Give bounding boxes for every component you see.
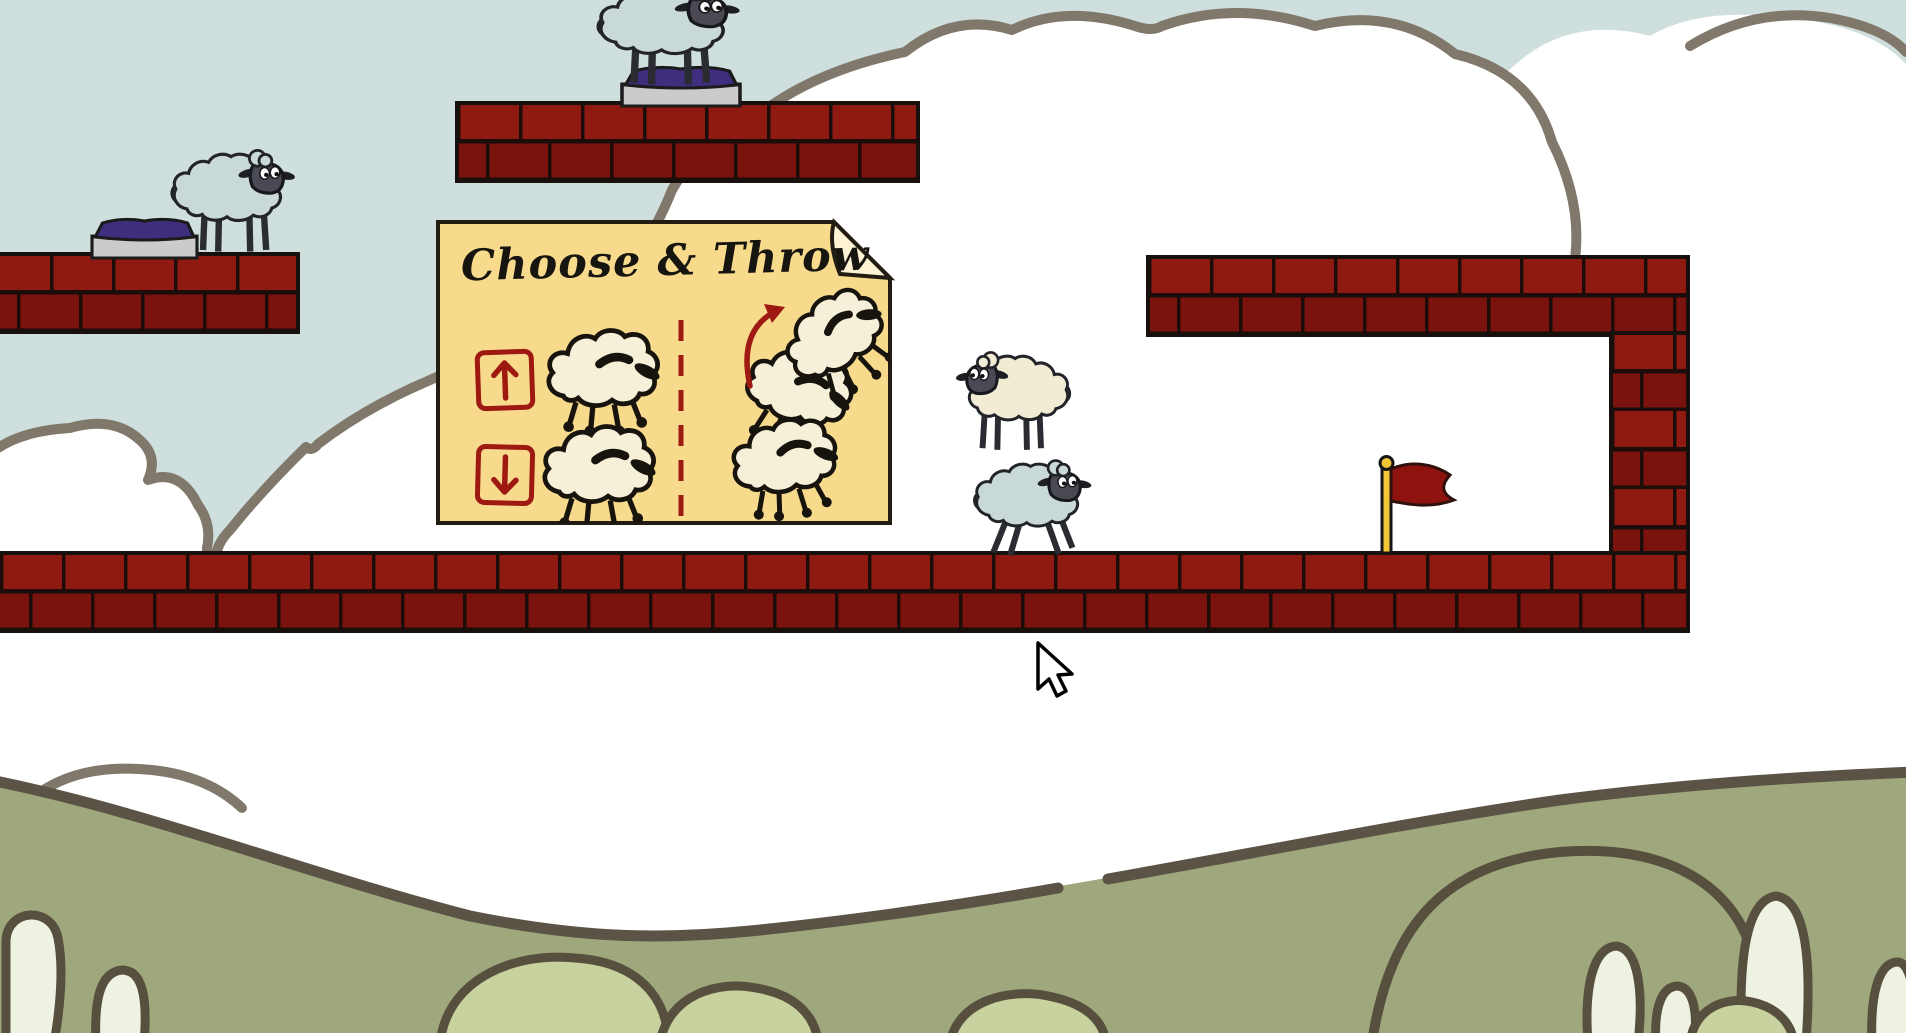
platform-top-middle <box>457 103 918 181</box>
ground-floor <box>0 553 1688 631</box>
cushion-top <box>622 67 740 106</box>
flag-cloth <box>1391 464 1454 505</box>
right-beam <box>1148 257 1688 335</box>
game-stage: Choose & Throw <box>0 0 1906 1033</box>
tree <box>1656 986 1696 1033</box>
instruction-card <box>438 222 912 532</box>
platform-left <box>0 254 298 332</box>
tree <box>96 970 146 1033</box>
tree <box>1872 962 1906 1033</box>
tree <box>1587 946 1640 1033</box>
tree <box>6 915 61 1033</box>
cushion-left <box>92 219 197 258</box>
